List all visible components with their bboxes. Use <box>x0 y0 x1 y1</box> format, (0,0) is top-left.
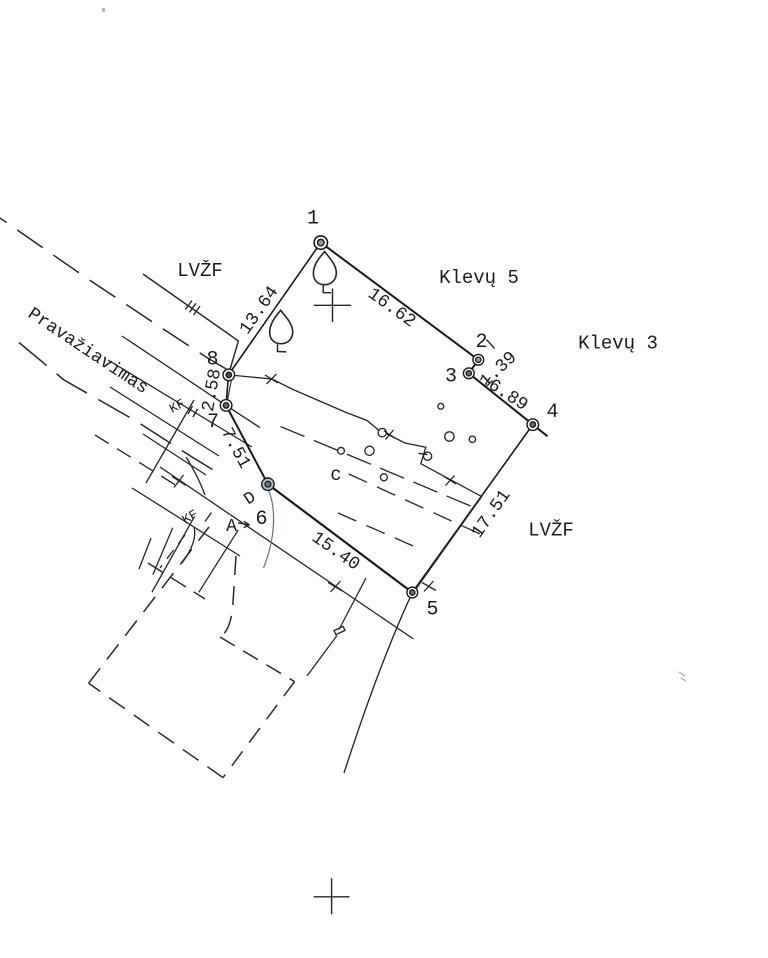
svg-text:2: 2 <box>475 331 487 354</box>
svg-text:Klevų 5: Klevų 5 <box>439 267 519 289</box>
svg-text:5: 5 <box>426 599 438 622</box>
svg-text:A: A <box>226 517 237 537</box>
svg-text:3: 3 <box>445 366 457 389</box>
svg-text:6: 6 <box>255 508 267 531</box>
svg-text:1: 1 <box>307 208 319 231</box>
svg-text:c: c <box>330 464 341 486</box>
svg-text:LVŽF: LVŽF <box>528 520 574 542</box>
svg-text:LVŽF: LVŽF <box>177 260 223 282</box>
svg-text:7: 7 <box>207 411 219 434</box>
svg-text:Klevų 3: Klevų 3 <box>578 333 658 355</box>
svg-text:4: 4 <box>546 401 558 424</box>
